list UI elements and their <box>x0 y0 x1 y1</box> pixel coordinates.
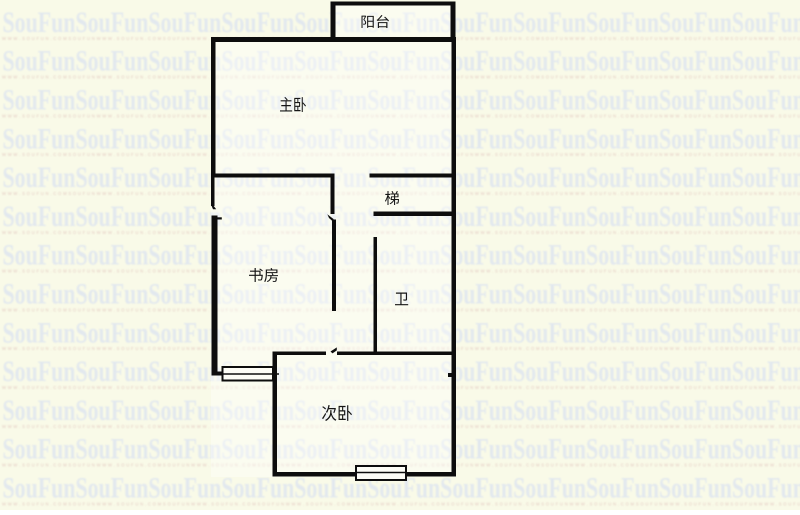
svg-text:W W W . S O U F U N . C O M: W W W . S O U F U N . C O M S O U F U N … <box>2 501 800 506</box>
